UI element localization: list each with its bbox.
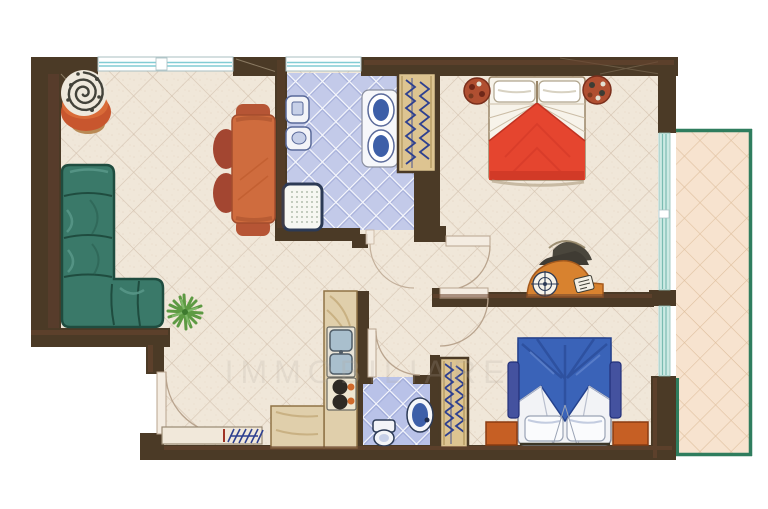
svg-text:IMMOBILIARE: IMMOBILIARE [225, 354, 512, 390]
